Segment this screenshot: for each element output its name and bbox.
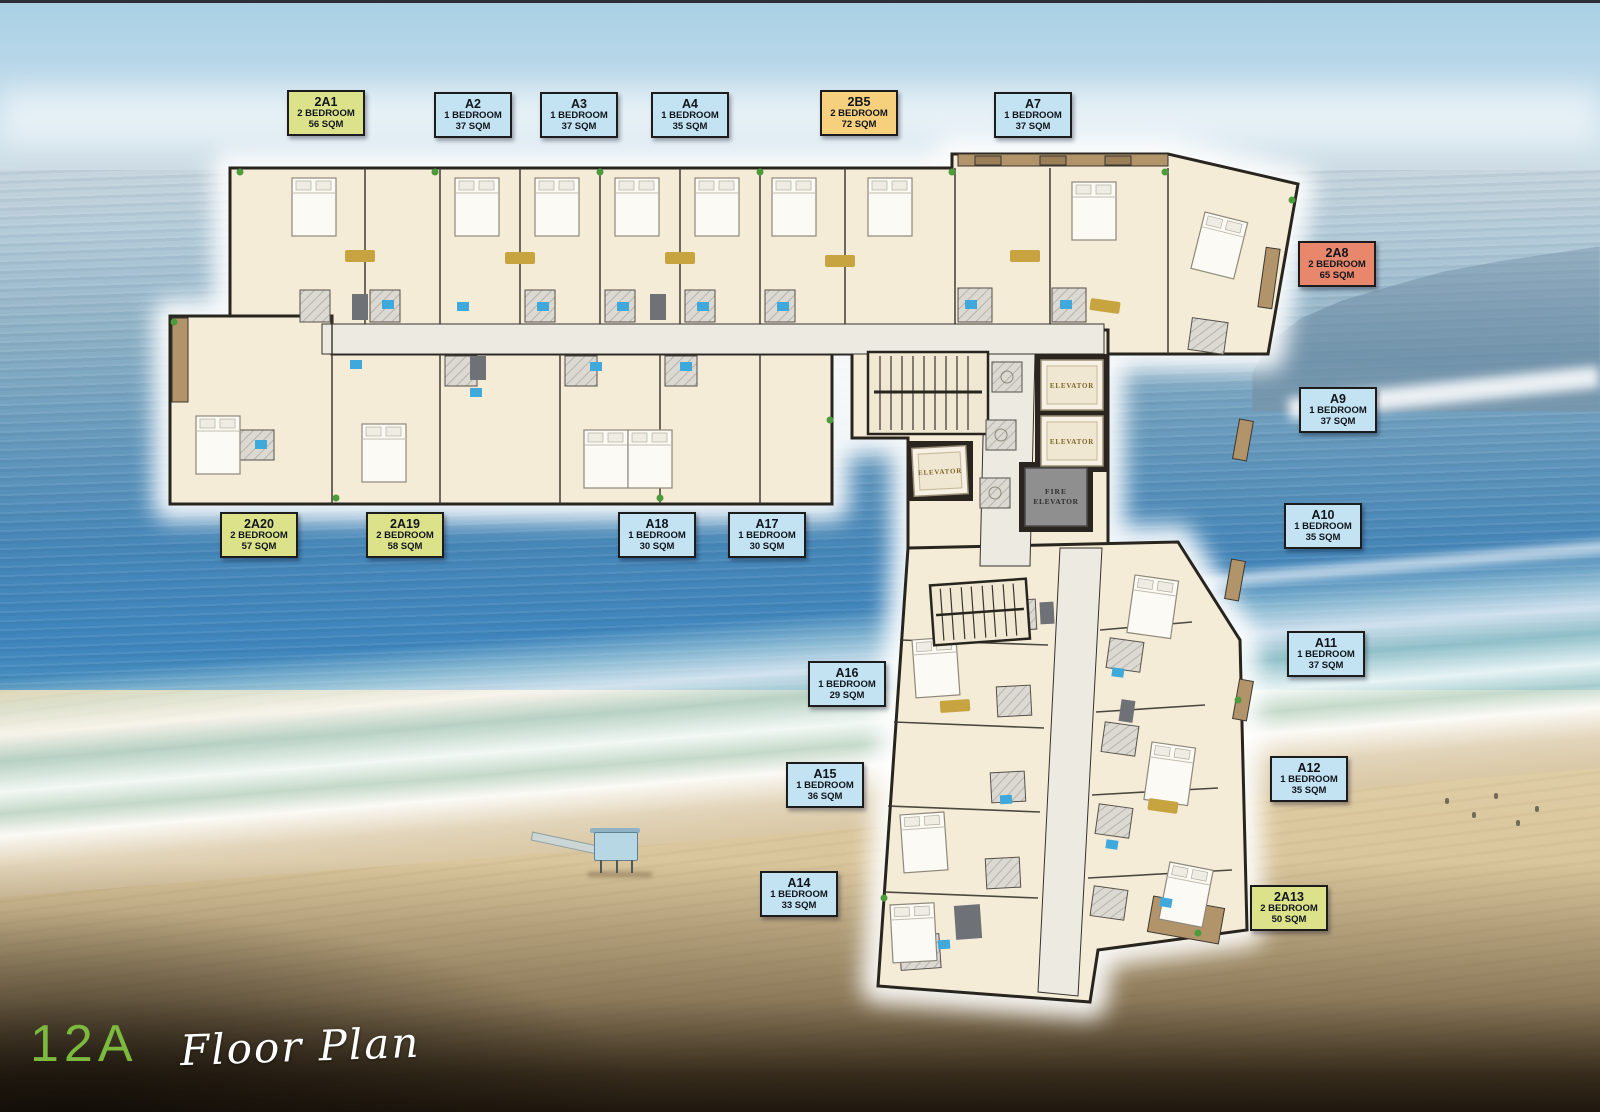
unit-id: 2A8 [1301,246,1373,260]
unit-id: 2A1 [290,95,362,109]
unit-area: 29 SQM [811,691,883,702]
floor-plan-label: Floor Plan [179,1018,421,1075]
lifeguard-hut [594,832,638,861]
unit-id: A4 [654,97,726,111]
unit-id: 2A19 [369,517,441,531]
unit-id: 2A13 [1253,890,1325,904]
unit-badge-a4[interactable]: A4 1 BEDROOM 35 SQM [651,92,729,138]
unit-area: 37 SQM [1302,417,1374,428]
unit-area: 56 SQM [290,120,362,131]
unit-id: A18 [621,517,693,531]
unit-area: 30 SQM [731,542,803,553]
unit-id: A3 [543,97,615,111]
unit-badge-a7[interactable]: A7 1 BEDROOM 37 SQM [994,92,1072,138]
unit-badge-2a20[interactable]: 2A20 2 BEDROOM 57 SQM [220,512,298,558]
unit-area: 36 SQM [789,792,861,803]
unit-area: 30 SQM [621,542,693,553]
unit-badge-a17[interactable]: A17 1 BEDROOM 30 SQM [728,512,806,558]
unit-area: 35 SQM [1287,533,1359,544]
unit-area: 72 SQM [823,120,895,131]
cloud-band [0,88,1600,143]
floor-number: 12A [30,1014,138,1074]
unit-badge-2b5[interactable]: 2B5 2 BEDROOM 72 SQM [820,90,898,136]
page-title: 12A Floor Plan [30,1014,420,1074]
unit-id: A17 [731,517,803,531]
unit-badge-a2[interactable]: A2 1 BEDROOM 37 SQM [434,92,512,138]
bottom-left-shadow [0,892,700,1112]
unit-area: 57 SQM [223,542,295,553]
unit-id: A10 [1287,508,1359,522]
unit-area: 50 SQM [1253,915,1325,926]
unit-id: A11 [1290,636,1362,650]
unit-badge-a11[interactable]: A11 1 BEDROOM 37 SQM [1287,631,1365,677]
unit-area: 37 SQM [997,122,1069,133]
unit-area: 65 SQM [1301,271,1373,282]
unit-area: 37 SQM [543,122,615,133]
unit-id: 2B5 [823,95,895,109]
unit-area: 37 SQM [437,122,509,133]
unit-badge-2a19[interactable]: 2A19 2 BEDROOM 58 SQM [366,512,444,558]
unit-badge-a14[interactable]: A14 1 BEDROOM 33 SQM [760,871,838,917]
unit-id: A16 [811,666,883,680]
unit-badge-a10[interactable]: A10 1 BEDROOM 35 SQM [1284,503,1362,549]
unit-badge-a16[interactable]: A16 1 BEDROOM 29 SQM [808,661,886,707]
unit-area: 37 SQM [1290,661,1362,672]
unit-badge-a15[interactable]: A15 1 BEDROOM 36 SQM [786,762,864,808]
unit-badge-2a8[interactable]: 2A8 2 BEDROOM 65 SQM [1298,241,1376,287]
unit-badge-a18[interactable]: A18 1 BEDROOM 30 SQM [618,512,696,558]
unit-id: 2A20 [223,517,295,531]
unit-id: A12 [1273,761,1345,775]
unit-badge-a3[interactable]: A3 1 BEDROOM 37 SQM [540,92,618,138]
unit-id: A14 [763,876,835,890]
lifeguard-ramp [531,832,601,855]
unit-id: A9 [1302,392,1374,406]
unit-badge-a9[interactable]: A9 1 BEDROOM 37 SQM [1299,387,1377,433]
unit-area: 58 SQM [369,542,441,553]
unit-badge-2a13[interactable]: 2A13 2 BEDROOM 50 SQM [1250,885,1328,931]
top-border [0,0,1600,3]
unit-area: 35 SQM [654,122,726,133]
unit-badge-2a1[interactable]: 2A1 2 BEDROOM 56 SQM [287,90,365,136]
unit-id: A7 [997,97,1069,111]
unit-badge-a12[interactable]: A12 1 BEDROOM 35 SQM [1270,756,1348,802]
unit-id: A2 [437,97,509,111]
unit-id: A15 [789,767,861,781]
unit-area: 35 SQM [1273,786,1345,797]
unit-area: 33 SQM [763,901,835,912]
